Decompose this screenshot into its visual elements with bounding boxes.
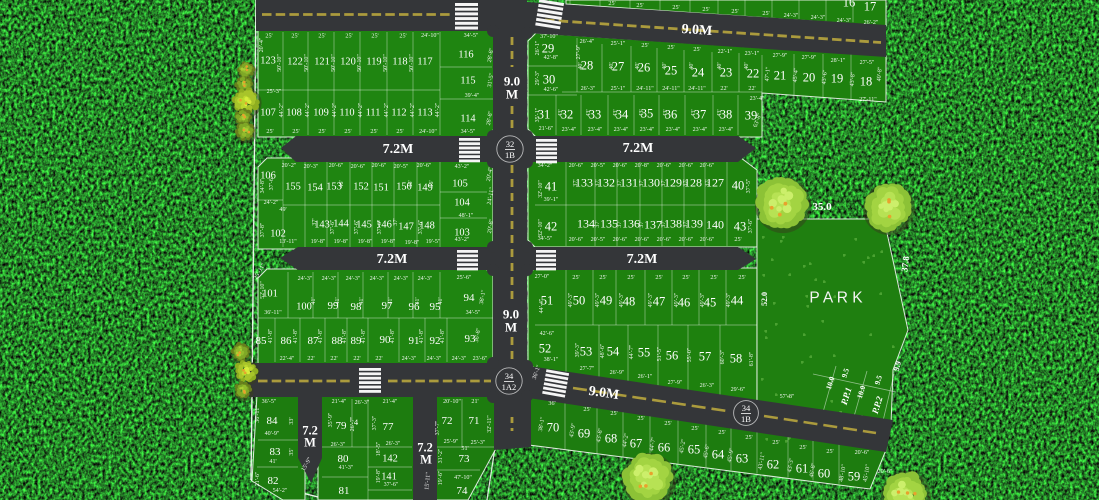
svg-text:41': 41' xyxy=(388,297,394,304)
svg-text:122: 122 xyxy=(287,57,303,68)
svg-text:24'-3": 24'-3" xyxy=(298,276,313,282)
svg-text:49'-3": 49'-3" xyxy=(700,292,706,307)
svg-text:62: 62 xyxy=(767,458,780,472)
svg-text:37.8: 37.8 xyxy=(899,255,911,272)
svg-text:142: 142 xyxy=(382,454,398,465)
svg-text:23'-4": 23'-4" xyxy=(614,127,629,133)
svg-text:M: M xyxy=(506,87,518,102)
svg-text:67: 67 xyxy=(630,437,643,451)
svg-text:41'-3": 41'-3" xyxy=(339,465,354,471)
svg-text:37'-8": 37'-8" xyxy=(260,222,266,237)
svg-text:25': 25' xyxy=(693,47,700,53)
svg-text:33': 33' xyxy=(289,417,295,424)
svg-text:41'-8": 41'-8" xyxy=(440,328,446,343)
svg-text:43': 43' xyxy=(613,109,619,116)
svg-text:137: 137 xyxy=(644,217,662,231)
svg-text:105: 105 xyxy=(452,179,468,190)
svg-text:25': 25' xyxy=(637,416,644,422)
svg-text:86: 86 xyxy=(281,335,293,347)
svg-text:23'-4": 23'-4" xyxy=(666,127,681,133)
svg-text:59: 59 xyxy=(848,470,861,484)
svg-text:46': 46' xyxy=(429,180,435,187)
svg-text:25': 25' xyxy=(664,421,671,427)
svg-text:46': 46' xyxy=(339,180,345,187)
svg-text:118: 118 xyxy=(392,57,407,68)
svg-text:25': 25' xyxy=(745,435,752,441)
svg-text:25'-1": 25'-1" xyxy=(611,41,626,47)
svg-text:43': 43' xyxy=(663,109,669,116)
svg-text:20'-6": 20'-6" xyxy=(329,163,344,169)
svg-text:24'-3": 24'-3" xyxy=(370,276,385,282)
svg-text:39'-1": 39'-1" xyxy=(544,197,559,203)
svg-text:43'-2": 43'-2" xyxy=(455,237,470,243)
svg-text:34'-5": 34'-5" xyxy=(461,129,476,135)
svg-text:41'-8": 41'-8" xyxy=(268,328,274,343)
svg-text:20'-6": 20'-6" xyxy=(700,237,715,243)
svg-text:20'-2": 20'-2" xyxy=(282,163,297,169)
svg-text:79: 79 xyxy=(336,420,348,432)
svg-text:114: 114 xyxy=(460,114,476,125)
svg-text:41': 41' xyxy=(269,459,276,465)
svg-text:26'-3": 26'-3" xyxy=(386,441,401,447)
svg-text:27'-9": 27'-9" xyxy=(668,380,683,386)
svg-text:20'-6": 20'-6" xyxy=(569,237,584,243)
svg-text:32'-10": 32'-10" xyxy=(538,180,544,198)
svg-text:41: 41 xyxy=(545,180,558,194)
svg-text:27'-9": 27'-9" xyxy=(802,55,817,61)
svg-text:1A2: 1A2 xyxy=(502,382,517,392)
svg-text:25': 25' xyxy=(672,5,679,11)
svg-text:70: 70 xyxy=(547,421,560,435)
svg-text:37': 37' xyxy=(639,220,645,227)
svg-text:26'-1": 26'-1" xyxy=(638,374,653,380)
svg-text:147: 147 xyxy=(398,222,414,233)
svg-text:50'-10": 50'-10" xyxy=(277,54,283,72)
svg-text:40: 40 xyxy=(732,179,745,193)
svg-text:43': 43' xyxy=(558,109,564,116)
svg-text:19'-5": 19'-5" xyxy=(426,239,441,245)
svg-text:25': 25' xyxy=(738,275,745,281)
svg-text:41': 41' xyxy=(438,297,444,304)
svg-text:64: 64 xyxy=(712,448,725,462)
svg-text:37'-10": 37'-10" xyxy=(540,34,558,40)
svg-text:84: 84 xyxy=(267,415,279,427)
svg-text:73: 73 xyxy=(459,453,471,465)
svg-text:20'-4": 20'-4" xyxy=(259,37,265,52)
svg-text:25': 25' xyxy=(599,275,606,281)
svg-text:44'-2": 44'-2" xyxy=(332,102,338,117)
svg-text:34'-8": 34'-8" xyxy=(260,178,266,193)
svg-text:25': 25' xyxy=(572,275,579,281)
svg-text:24'-11": 24'-11" xyxy=(662,86,680,92)
svg-text:25': 25' xyxy=(265,34,272,40)
svg-text:24'-3": 24'-3" xyxy=(418,276,433,282)
svg-text:25': 25' xyxy=(636,3,643,9)
svg-text:29: 29 xyxy=(542,42,555,56)
svg-text:7.2M: 7.2M xyxy=(627,252,658,267)
svg-text:25': 25' xyxy=(318,34,325,40)
svg-text:36': 36' xyxy=(548,401,555,407)
svg-text:25': 25' xyxy=(731,9,738,15)
svg-text:25': 25' xyxy=(710,275,717,281)
svg-text:24'-3": 24'-3" xyxy=(394,276,409,282)
svg-text:48'-1": 48'-1" xyxy=(459,213,474,219)
svg-text:27'-7": 27'-7" xyxy=(580,366,595,372)
svg-text:107: 107 xyxy=(260,108,276,119)
svg-text:13'-11": 13'-11" xyxy=(279,239,297,245)
svg-text:26'-3": 26'-3" xyxy=(355,400,370,406)
svg-text:55: 55 xyxy=(638,346,651,360)
svg-text:37': 37' xyxy=(705,179,711,186)
svg-text:38'-1": 38'-1" xyxy=(544,357,559,363)
svg-text:37'-6": 37'-6" xyxy=(354,219,360,234)
svg-text:34: 34 xyxy=(742,403,751,413)
svg-text:37'-5": 37'-5" xyxy=(746,178,752,193)
svg-text:44'-4": 44'-4" xyxy=(539,298,545,313)
svg-text:52'-10": 52'-10" xyxy=(260,281,266,299)
svg-text:47: 47 xyxy=(653,295,666,309)
svg-text:21'-4": 21'-4" xyxy=(383,399,398,405)
svg-text:19'-8": 19'-8" xyxy=(381,239,396,245)
svg-text:27'-9": 27'-9" xyxy=(576,44,582,59)
svg-text:25'-1": 25'-1" xyxy=(611,86,626,92)
svg-text:36'-11": 36'-11" xyxy=(255,405,261,423)
svg-text:25': 25' xyxy=(266,129,273,135)
svg-text:52.0: 52.0 xyxy=(760,292,769,306)
svg-text:23'-4": 23'-4" xyxy=(750,96,765,102)
svg-text:35'-9": 35'-9" xyxy=(328,412,334,427)
svg-text:25': 25' xyxy=(762,11,769,17)
svg-text:7.2M: 7.2M xyxy=(623,141,654,156)
svg-text:25'-9": 25'-9" xyxy=(444,439,459,445)
svg-text:18: 18 xyxy=(860,75,873,89)
svg-text:27'-0": 27'-0" xyxy=(535,274,550,280)
svg-text:23'-4": 23'-4" xyxy=(719,127,734,133)
svg-text:20'-6": 20'-6" xyxy=(569,163,584,169)
svg-text:94: 94 xyxy=(464,292,476,304)
svg-text:49'-3": 49'-3" xyxy=(595,292,601,307)
svg-text:111: 111 xyxy=(366,108,381,119)
svg-text:23'-4": 23'-4" xyxy=(588,127,603,133)
svg-text:49'-3": 49'-3" xyxy=(648,292,654,307)
svg-text:37': 37' xyxy=(683,179,689,186)
svg-text:123: 123 xyxy=(260,56,276,67)
svg-text:20'-6": 20'-6" xyxy=(700,163,715,169)
svg-text:25': 25' xyxy=(691,426,698,432)
svg-text:49'-3": 49'-3" xyxy=(674,292,680,307)
svg-text:23'-4": 23'-4" xyxy=(693,127,708,133)
svg-text:20'-6": 20'-6" xyxy=(679,163,694,169)
svg-text:25': 25' xyxy=(318,129,325,135)
svg-text:34: 34 xyxy=(505,371,514,381)
svg-text:44: 44 xyxy=(731,294,744,308)
svg-text:22': 22' xyxy=(330,356,337,362)
svg-text:50'-10": 50'-10" xyxy=(383,54,389,72)
svg-text:27'-11": 27'-11" xyxy=(859,97,877,103)
svg-text:42'-6": 42'-6" xyxy=(540,331,555,337)
svg-text:154: 154 xyxy=(307,183,323,194)
svg-text:22': 22' xyxy=(353,356,360,362)
svg-text:26'-3": 26'-3" xyxy=(331,442,346,448)
svg-text:25': 25' xyxy=(667,45,674,51)
svg-text:M: M xyxy=(304,436,316,450)
svg-text:37': 37' xyxy=(639,179,645,186)
svg-text:25': 25' xyxy=(370,129,377,135)
svg-text:23'-1": 23'-1" xyxy=(745,51,760,57)
svg-text:120: 120 xyxy=(340,57,356,68)
svg-text:42: 42 xyxy=(545,220,558,234)
svg-text:30: 30 xyxy=(543,73,556,87)
svg-text:26'-3": 26'-3" xyxy=(581,86,596,92)
svg-text:37': 37' xyxy=(661,179,667,186)
svg-text:81: 81 xyxy=(339,485,350,497)
svg-text:24'-11": 24'-11" xyxy=(688,86,706,92)
svg-text:121: 121 xyxy=(314,57,330,68)
svg-text:140: 140 xyxy=(706,217,724,231)
svg-text:31'-2": 31'-2" xyxy=(438,448,444,463)
svg-text:24'-3": 24'-3" xyxy=(784,13,799,19)
svg-text:25': 25' xyxy=(826,449,833,455)
svg-text:40': 40' xyxy=(635,62,641,69)
svg-text:37': 37' xyxy=(617,220,623,227)
svg-text:37': 37' xyxy=(683,220,689,227)
svg-text:24'-3": 24'-3" xyxy=(452,356,467,362)
svg-text:20'-6": 20'-6" xyxy=(657,237,672,243)
svg-text:56: 56 xyxy=(666,349,679,363)
svg-text:48'-6": 48'-6" xyxy=(600,343,606,358)
svg-text:24'-11": 24'-11" xyxy=(636,86,654,92)
svg-text:44'-2": 44'-2" xyxy=(305,102,311,117)
svg-text:19: 19 xyxy=(831,72,844,86)
svg-text:23'-4": 23'-4" xyxy=(640,127,655,133)
svg-text:49'-3": 49'-3" xyxy=(619,292,625,307)
svg-text:36'-11": 36'-11" xyxy=(264,310,282,316)
svg-text:9.0M: 9.0M xyxy=(681,22,713,39)
svg-text:74: 74 xyxy=(457,485,469,497)
svg-text:72: 72 xyxy=(442,415,453,427)
svg-text:42'-8": 42'-8" xyxy=(544,55,559,61)
svg-text:82: 82 xyxy=(268,475,279,487)
svg-text:57'-8": 57'-8" xyxy=(780,394,795,400)
svg-text:20'-6": 20'-6" xyxy=(635,237,650,243)
svg-text:61'-8": 61'-8" xyxy=(749,351,755,366)
svg-text:19'-6": 19'-6" xyxy=(438,470,444,485)
svg-text:104: 104 xyxy=(454,198,470,209)
svg-text:43': 43' xyxy=(717,109,723,116)
svg-text:20'-10": 20'-10" xyxy=(443,399,461,405)
svg-text:51': 51' xyxy=(461,446,468,452)
svg-text:25'-3": 25'-3" xyxy=(471,440,486,446)
svg-text:37': 37' xyxy=(393,218,399,225)
svg-text:49'-3": 49'-3" xyxy=(726,292,732,307)
svg-text:23'-6": 23'-6" xyxy=(473,356,488,362)
svg-text:20'-6": 20'-6" xyxy=(855,450,870,456)
svg-text:22'-4": 22'-4" xyxy=(280,356,295,362)
svg-text:42'-6": 42'-6" xyxy=(544,87,559,93)
svg-text:41': 41' xyxy=(311,297,317,304)
svg-text:20'-6": 20'-6" xyxy=(657,163,672,169)
svg-text:26'-4": 26'-4" xyxy=(580,39,595,45)
svg-text:21'-4": 21'-4" xyxy=(332,399,347,405)
svg-text:20'-3": 20'-3" xyxy=(304,164,319,170)
svg-text:25'-6": 25'-6" xyxy=(457,275,472,281)
svg-text:1B: 1B xyxy=(741,414,751,424)
svg-text:66: 66 xyxy=(658,441,671,455)
svg-text:19'-8": 19'-8" xyxy=(334,239,349,245)
svg-text:43'-2": 43'-2" xyxy=(455,164,470,170)
svg-text:21'-6": 21'-6" xyxy=(539,126,554,132)
svg-text:25': 25' xyxy=(371,34,378,40)
svg-text:26'-9": 26'-9" xyxy=(610,370,625,376)
svg-text:25': 25' xyxy=(345,34,352,40)
svg-text:41'-8": 41'-8" xyxy=(390,328,396,343)
svg-text:108: 108 xyxy=(286,108,302,119)
svg-text:P A R K: P A R K xyxy=(809,290,863,307)
svg-text:50: 50 xyxy=(573,294,586,308)
svg-text:40': 40' xyxy=(689,62,695,69)
svg-text:116: 116 xyxy=(458,50,473,61)
svg-text:37'-6": 37'-6" xyxy=(418,219,424,234)
svg-text:151: 151 xyxy=(373,183,389,194)
svg-text:17: 17 xyxy=(864,0,877,14)
svg-text:20'-5": 20'-5" xyxy=(394,164,409,170)
svg-text:51'-5": 51'-5" xyxy=(657,346,663,361)
svg-text:M: M xyxy=(420,453,432,467)
svg-text:40': 40' xyxy=(609,62,615,69)
svg-text:27'-5": 27'-5" xyxy=(860,60,875,66)
svg-text:24'-3": 24'-3" xyxy=(427,356,442,362)
svg-text:25': 25' xyxy=(718,430,725,436)
svg-text:80: 80 xyxy=(338,453,350,465)
svg-text:21': 21' xyxy=(471,399,478,405)
svg-text:26'-2": 26'-2" xyxy=(864,20,879,26)
svg-text:20'-6": 20'-6" xyxy=(679,237,694,243)
svg-text:25': 25' xyxy=(682,275,689,281)
svg-text:85: 85 xyxy=(256,335,268,347)
svg-text:44'-2": 44'-2" xyxy=(410,102,416,117)
svg-text:52: 52 xyxy=(539,342,552,356)
svg-text:24'-10": 24'-10" xyxy=(419,129,437,135)
svg-text:50'-10": 50'-10" xyxy=(331,54,337,72)
svg-text:20'-6": 20'-6" xyxy=(351,164,366,170)
svg-text:83: 83 xyxy=(270,446,282,458)
svg-text:29'-6": 29'-6" xyxy=(731,387,746,393)
svg-text:49: 49 xyxy=(600,294,613,308)
svg-text:49'-3": 49'-3" xyxy=(568,292,574,307)
svg-text:25': 25' xyxy=(610,411,617,417)
svg-text:37': 37' xyxy=(595,179,601,186)
svg-text:41'-8": 41'-8" xyxy=(318,328,324,343)
svg-text:40': 40' xyxy=(717,62,723,69)
svg-text:25'-3": 25'-3" xyxy=(267,89,282,95)
svg-text:47'-10": 47'-10" xyxy=(454,475,472,481)
svg-text:53: 53 xyxy=(580,345,593,359)
svg-text:113: 113 xyxy=(417,108,432,119)
svg-text:22': 22' xyxy=(720,86,727,92)
svg-text:23'-4": 23'-4" xyxy=(562,127,577,133)
svg-text:37': 37' xyxy=(661,220,667,227)
svg-text:55'-0": 55'-0" xyxy=(687,347,693,362)
svg-text:26'-1": 26'-1" xyxy=(535,40,541,55)
svg-text:43': 43' xyxy=(586,109,592,116)
svg-text:40': 40' xyxy=(578,62,584,69)
svg-text:109: 109 xyxy=(313,108,329,119)
svg-text:25': 25' xyxy=(583,407,590,413)
svg-text:25': 25' xyxy=(799,445,806,451)
svg-text:32'-11": 32'-11" xyxy=(487,415,493,433)
svg-text:29'-3": 29'-3" xyxy=(535,70,541,85)
svg-text:37'-6": 37'-6" xyxy=(330,219,336,234)
svg-text:22'-1": 22'-1" xyxy=(718,49,733,55)
svg-text:19'-8": 19'-8" xyxy=(376,468,382,483)
svg-text:35': 35' xyxy=(289,448,295,455)
svg-text:117: 117 xyxy=(417,57,432,68)
svg-text:20'-8": 20'-8" xyxy=(635,163,650,169)
svg-text:40': 40' xyxy=(744,62,750,69)
svg-text:M: M xyxy=(505,320,517,335)
svg-text:50'-10": 50'-10" xyxy=(357,54,363,72)
svg-text:43': 43' xyxy=(691,109,697,116)
svg-text:32: 32 xyxy=(506,139,515,149)
svg-text:37': 37' xyxy=(617,179,623,186)
svg-text:34'-5": 34'-5" xyxy=(464,33,479,39)
svg-text:152: 152 xyxy=(353,182,369,193)
svg-text:57: 57 xyxy=(699,350,712,364)
svg-text:43: 43 xyxy=(734,220,747,234)
svg-text:24'-3": 24'-3" xyxy=(837,18,852,24)
svg-text:44'-7": 44'-7" xyxy=(629,344,635,359)
svg-text:32'-10": 32'-10" xyxy=(538,219,544,237)
svg-text:46': 46' xyxy=(408,180,414,187)
svg-text:135: 135 xyxy=(600,216,618,230)
svg-text:34'-5": 34'-5" xyxy=(466,310,481,316)
svg-text:58: 58 xyxy=(730,352,743,366)
svg-text:24'-3": 24'-3" xyxy=(811,15,826,21)
svg-text:44'-2": 44'-2" xyxy=(358,102,364,117)
svg-text:40': 40' xyxy=(662,62,668,69)
svg-text:43': 43' xyxy=(639,109,645,116)
svg-text:37'-7": 37'-7" xyxy=(435,420,441,435)
svg-text:37'-3": 37'-3" xyxy=(372,415,378,430)
svg-text:50'-10": 50'-10" xyxy=(304,54,310,72)
svg-text:25': 25' xyxy=(292,129,299,135)
svg-text:1B: 1B xyxy=(505,150,515,160)
svg-text:63: 63 xyxy=(736,452,749,466)
svg-text:20: 20 xyxy=(803,71,816,85)
svg-text:37'-6": 37'-6" xyxy=(377,219,383,234)
svg-text:115: 115 xyxy=(460,76,475,87)
svg-text:25': 25' xyxy=(772,440,779,446)
svg-text:41': 41' xyxy=(415,297,421,304)
svg-text:100: 100 xyxy=(296,302,312,313)
svg-text:155: 155 xyxy=(285,182,301,193)
svg-text:41': 41' xyxy=(335,297,341,304)
svg-text:61: 61 xyxy=(796,462,809,476)
svg-text:19'-8": 19'-8" xyxy=(405,240,420,246)
svg-text:20'-6": 20'-6" xyxy=(878,469,893,475)
svg-text:40'-9": 40'-9" xyxy=(265,431,280,437)
svg-text:60'-3": 60'-3" xyxy=(720,349,726,364)
svg-text:28'-1": 28'-1" xyxy=(831,58,846,64)
svg-text:77: 77 xyxy=(383,421,395,433)
svg-text:24'-3": 24'-3" xyxy=(346,276,361,282)
svg-text:49': 49' xyxy=(279,207,286,213)
svg-text:22': 22' xyxy=(307,356,314,362)
svg-text:25': 25' xyxy=(396,129,403,135)
svg-text:25': 25' xyxy=(608,1,615,7)
svg-text:20'-6": 20'-6" xyxy=(613,163,628,169)
svg-text:92: 92 xyxy=(430,335,441,347)
